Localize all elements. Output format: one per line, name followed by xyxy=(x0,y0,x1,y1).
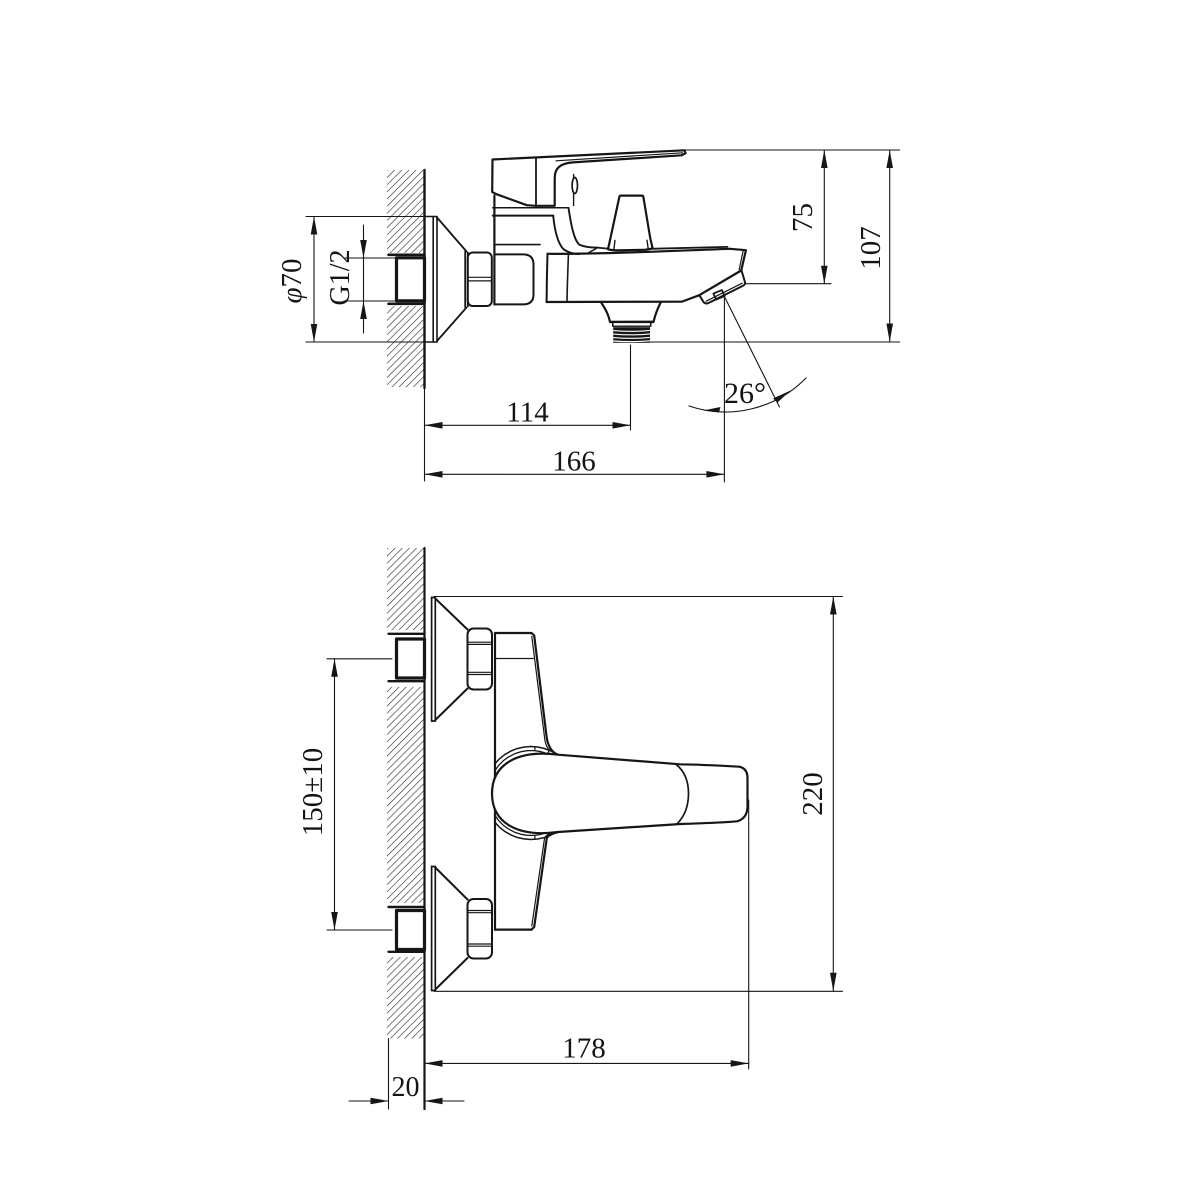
svg-text:114: 114 xyxy=(506,397,549,429)
svg-text:75: 75 xyxy=(787,203,819,232)
svg-text:G1/2: G1/2 xyxy=(325,250,356,306)
svg-text:150±10: 150±10 xyxy=(297,748,329,836)
svg-text:220: 220 xyxy=(797,772,829,816)
svg-text:φ70: φ70 xyxy=(276,258,308,303)
svg-text:107: 107 xyxy=(855,226,887,270)
svg-text:20: 20 xyxy=(392,1072,420,1103)
svg-text:166: 166 xyxy=(552,446,596,478)
svg-text:178: 178 xyxy=(562,1033,606,1065)
svg-text:26°: 26° xyxy=(724,377,766,410)
